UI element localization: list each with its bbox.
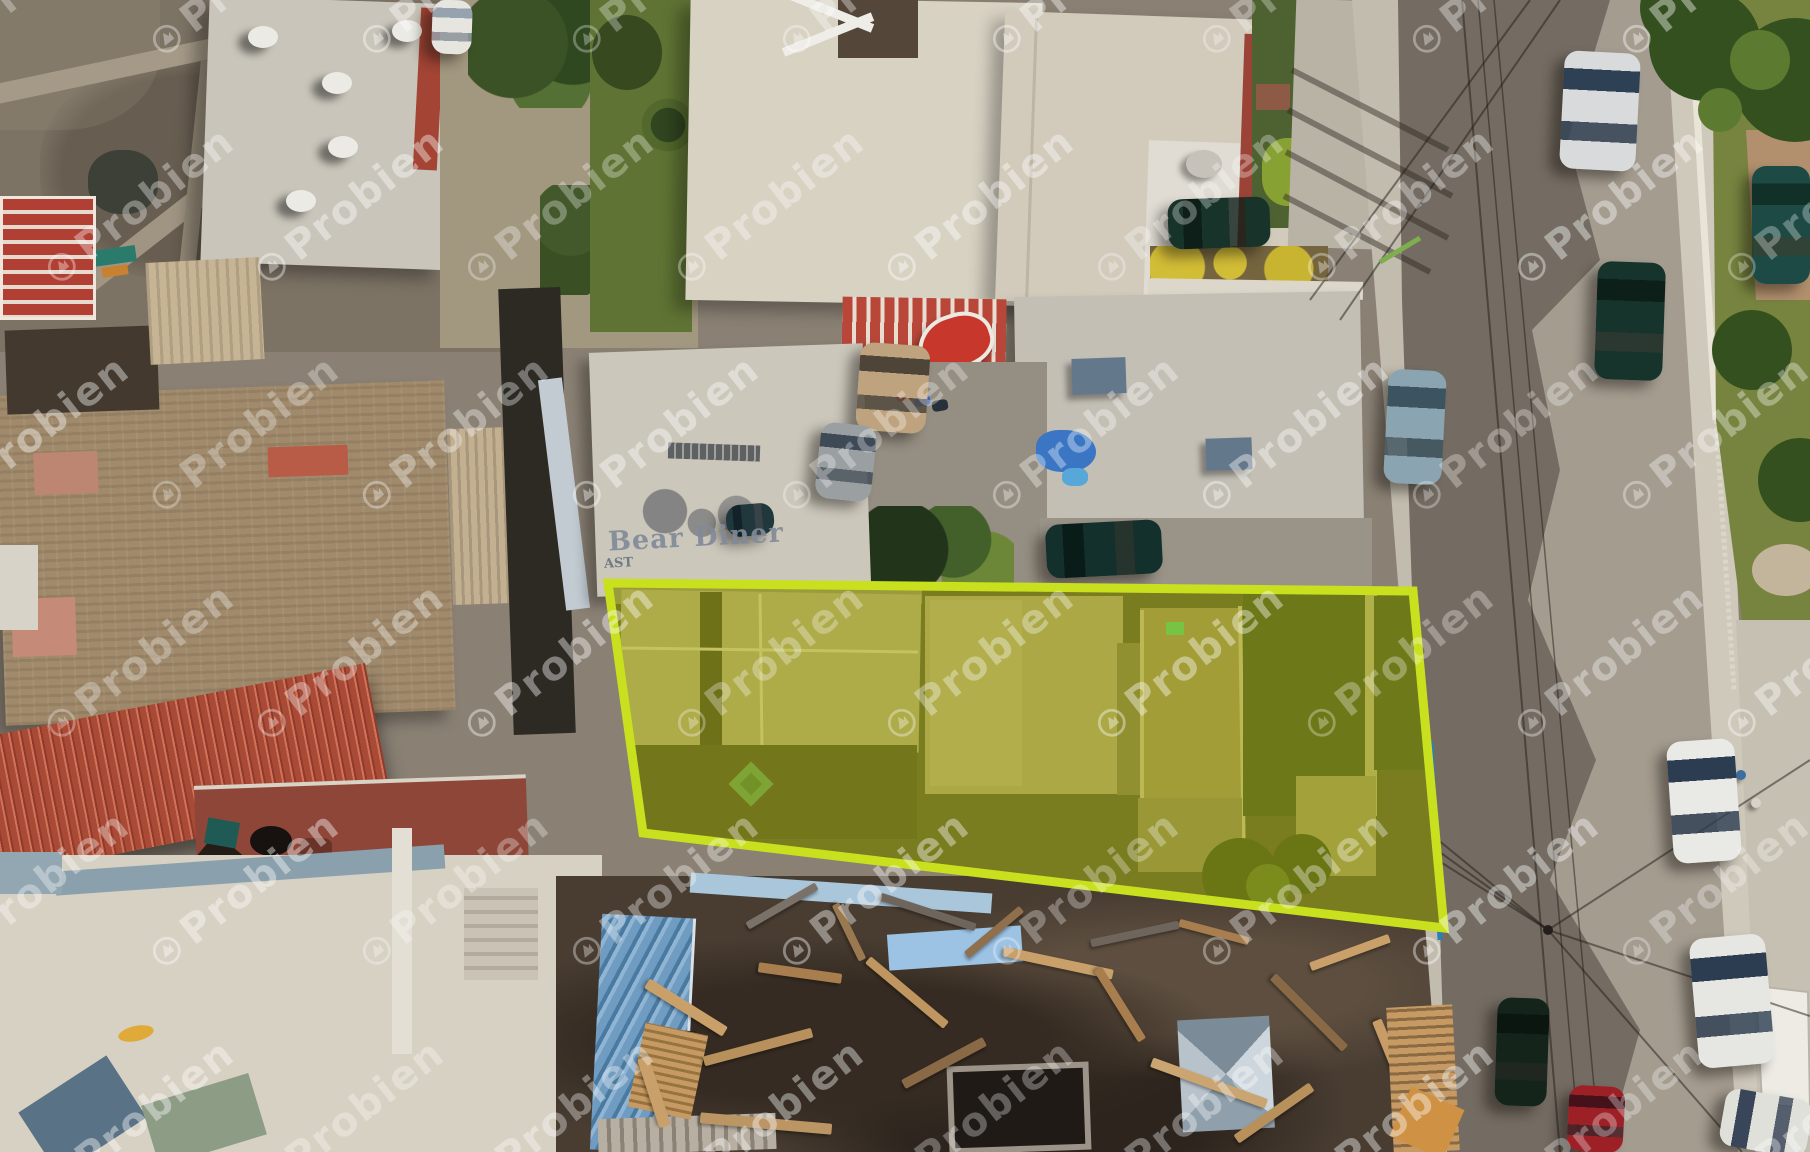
aerial-drone-photo: Bear Diner AST ProbienProbienProbienProb… bbox=[0, 0, 1810, 1152]
property-highlight bbox=[0, 0, 1810, 1152]
roof-sign-partial: AST bbox=[604, 555, 634, 572]
